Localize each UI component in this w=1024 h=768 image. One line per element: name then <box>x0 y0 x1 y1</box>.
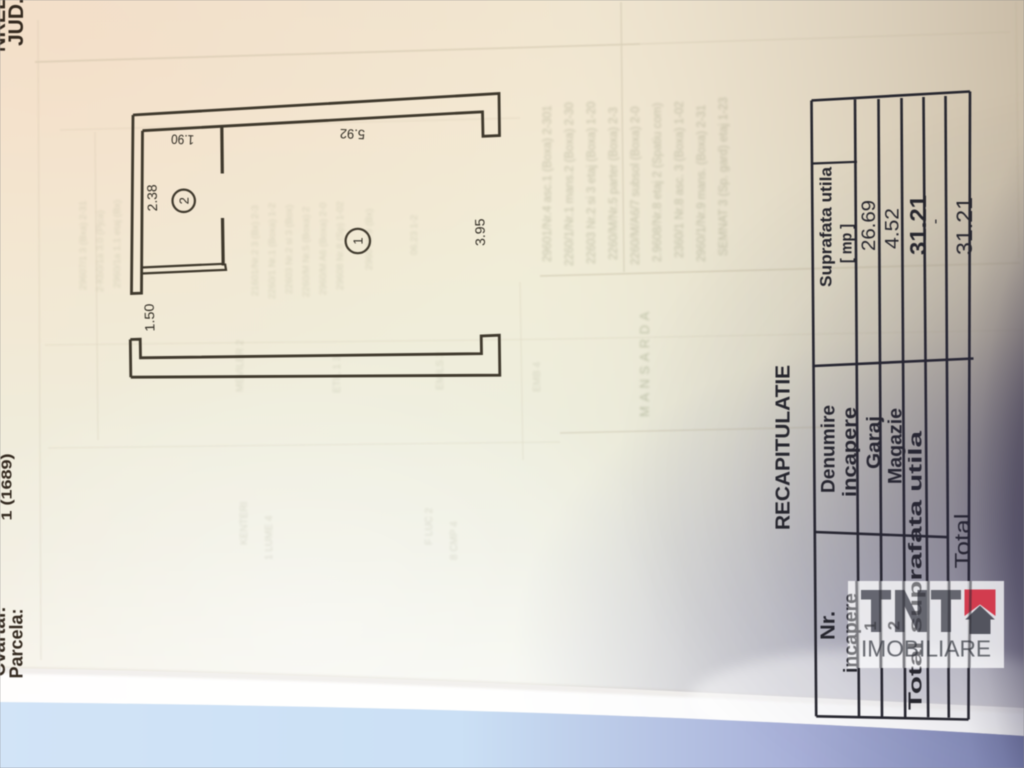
svg-text:2: 2 <box>885 621 903 630</box>
svg-text:1: 1 <box>862 621 880 630</box>
